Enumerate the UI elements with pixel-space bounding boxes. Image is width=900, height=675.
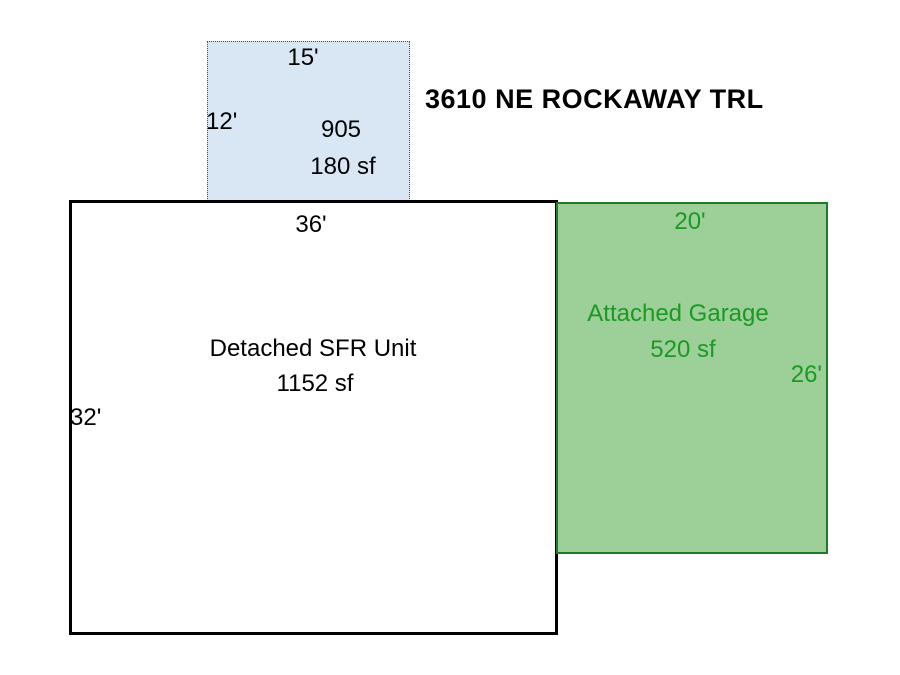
house-area: 1152 sf bbox=[277, 370, 354, 398]
garage-outline bbox=[556, 202, 828, 554]
house-left-dimension: 32' bbox=[70, 404, 101, 432]
shed-top-dimension: 15' bbox=[287, 44, 318, 72]
shed-name: 905 bbox=[321, 116, 361, 144]
shed-area: 180 sf bbox=[310, 153, 375, 181]
garage-name: Attached Garage bbox=[587, 300, 768, 328]
shed-left-dimension: 12' bbox=[206, 108, 237, 136]
house-outline bbox=[69, 200, 558, 635]
garage-area: 520 sf bbox=[650, 336, 715, 364]
house-name: Detached SFR Unit bbox=[210, 335, 417, 363]
property-sketch: 3610 NE ROCKAWAY TRL 15' 12' 905 180 sf … bbox=[0, 0, 900, 675]
address-title: 3610 NE ROCKAWAY TRL bbox=[425, 84, 764, 115]
house-top-dimension: 36' bbox=[295, 211, 326, 239]
garage-right-dimension: 26' bbox=[791, 361, 822, 389]
garage-top-dimension: 20' bbox=[674, 208, 705, 236]
